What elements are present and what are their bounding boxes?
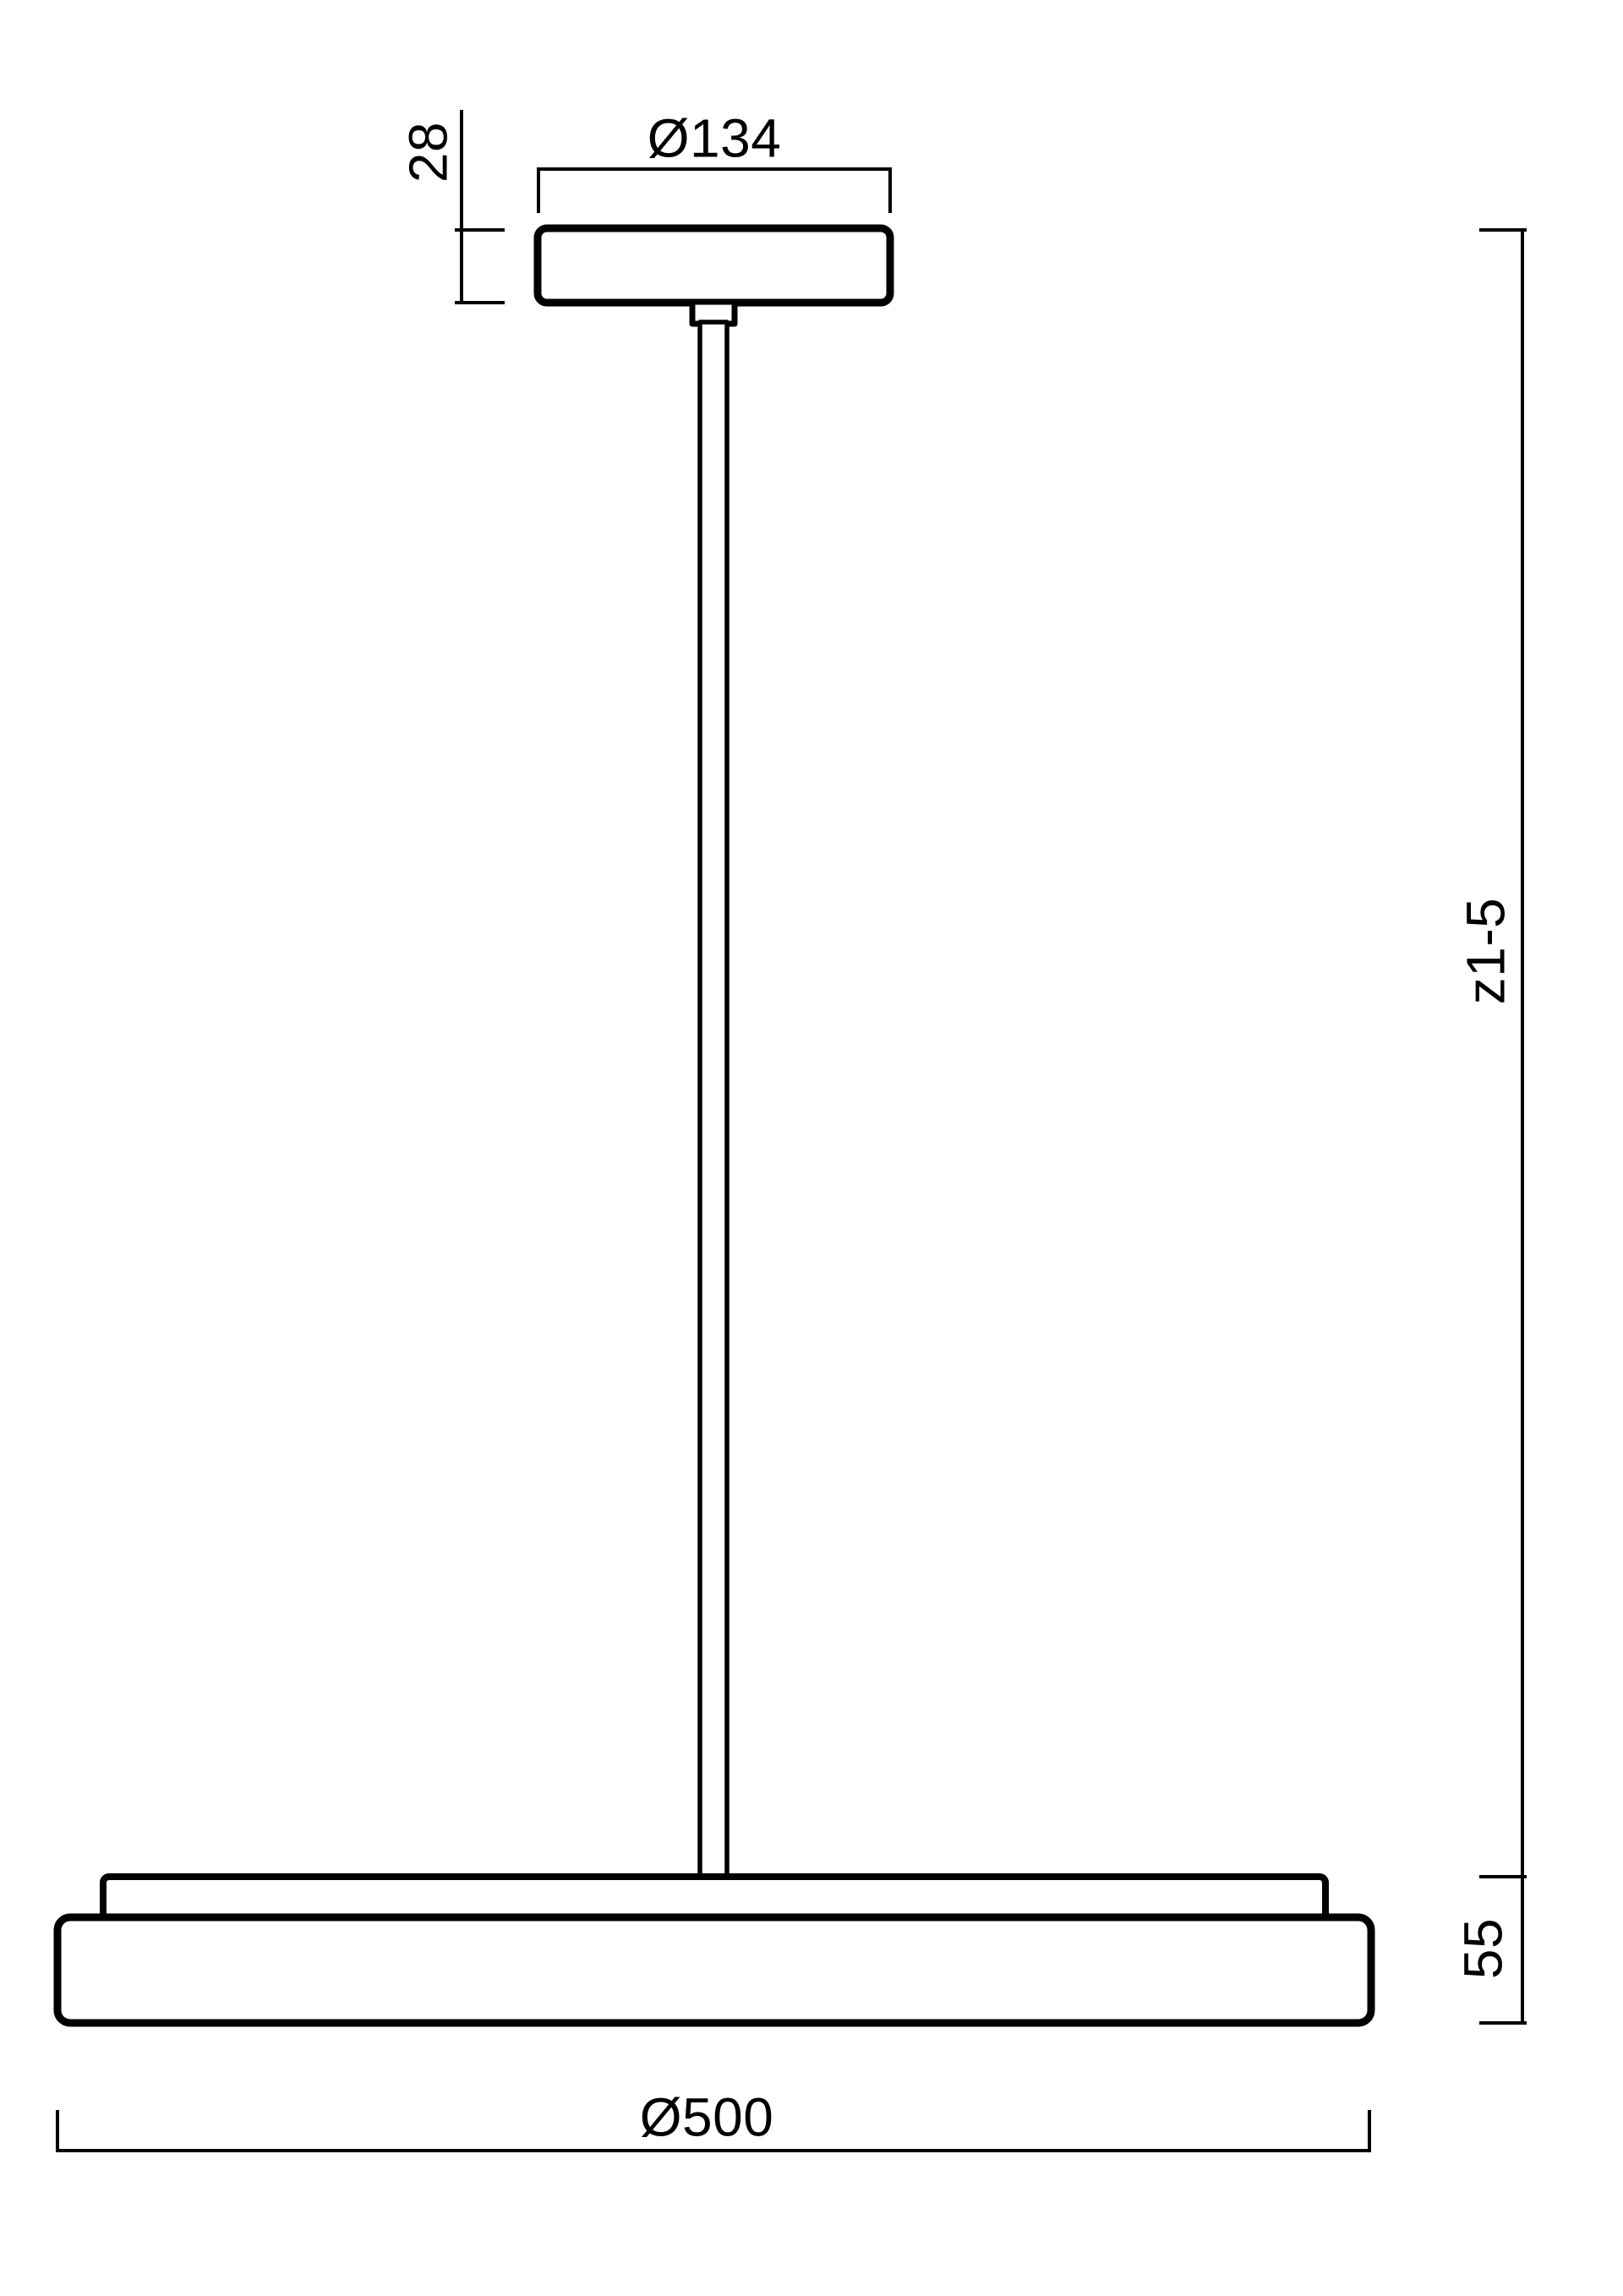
suspension-rod xyxy=(700,322,727,1878)
dim-label-fixture-diameter: Ø500 xyxy=(640,2086,774,2147)
fixture-diffuser-outline xyxy=(57,1917,1371,2023)
canopy-group xyxy=(538,228,890,324)
dim-canopy-diameter: Ø134 xyxy=(538,107,890,213)
fixture-top-ring-outline xyxy=(103,1877,1325,1919)
dim-right-column: z1-5 55 xyxy=(1452,230,1527,2023)
dim-fixture-diameter: Ø500 xyxy=(57,2086,1369,2151)
canopy-outline xyxy=(538,228,890,303)
dim-label-canopy-diameter: Ø134 xyxy=(648,107,782,168)
dim-label-canopy-height: 28 xyxy=(397,122,458,183)
technical-drawing-canvas: Ø134 28 z1-5 55 Ø500 xyxy=(0,0,1623,2296)
pendant-light-dimension-diagram: Ø134 28 z1-5 55 Ø500 xyxy=(0,0,1623,2296)
fixture-body-group xyxy=(57,1877,1371,2023)
dim-canopy-height: 28 xyxy=(397,110,505,304)
dim-label-suspension-length: z1-5 xyxy=(1455,898,1516,1005)
dim-label-fixture-height: 55 xyxy=(1452,1918,1513,1979)
dim-line-canopy-diameter xyxy=(538,169,890,213)
